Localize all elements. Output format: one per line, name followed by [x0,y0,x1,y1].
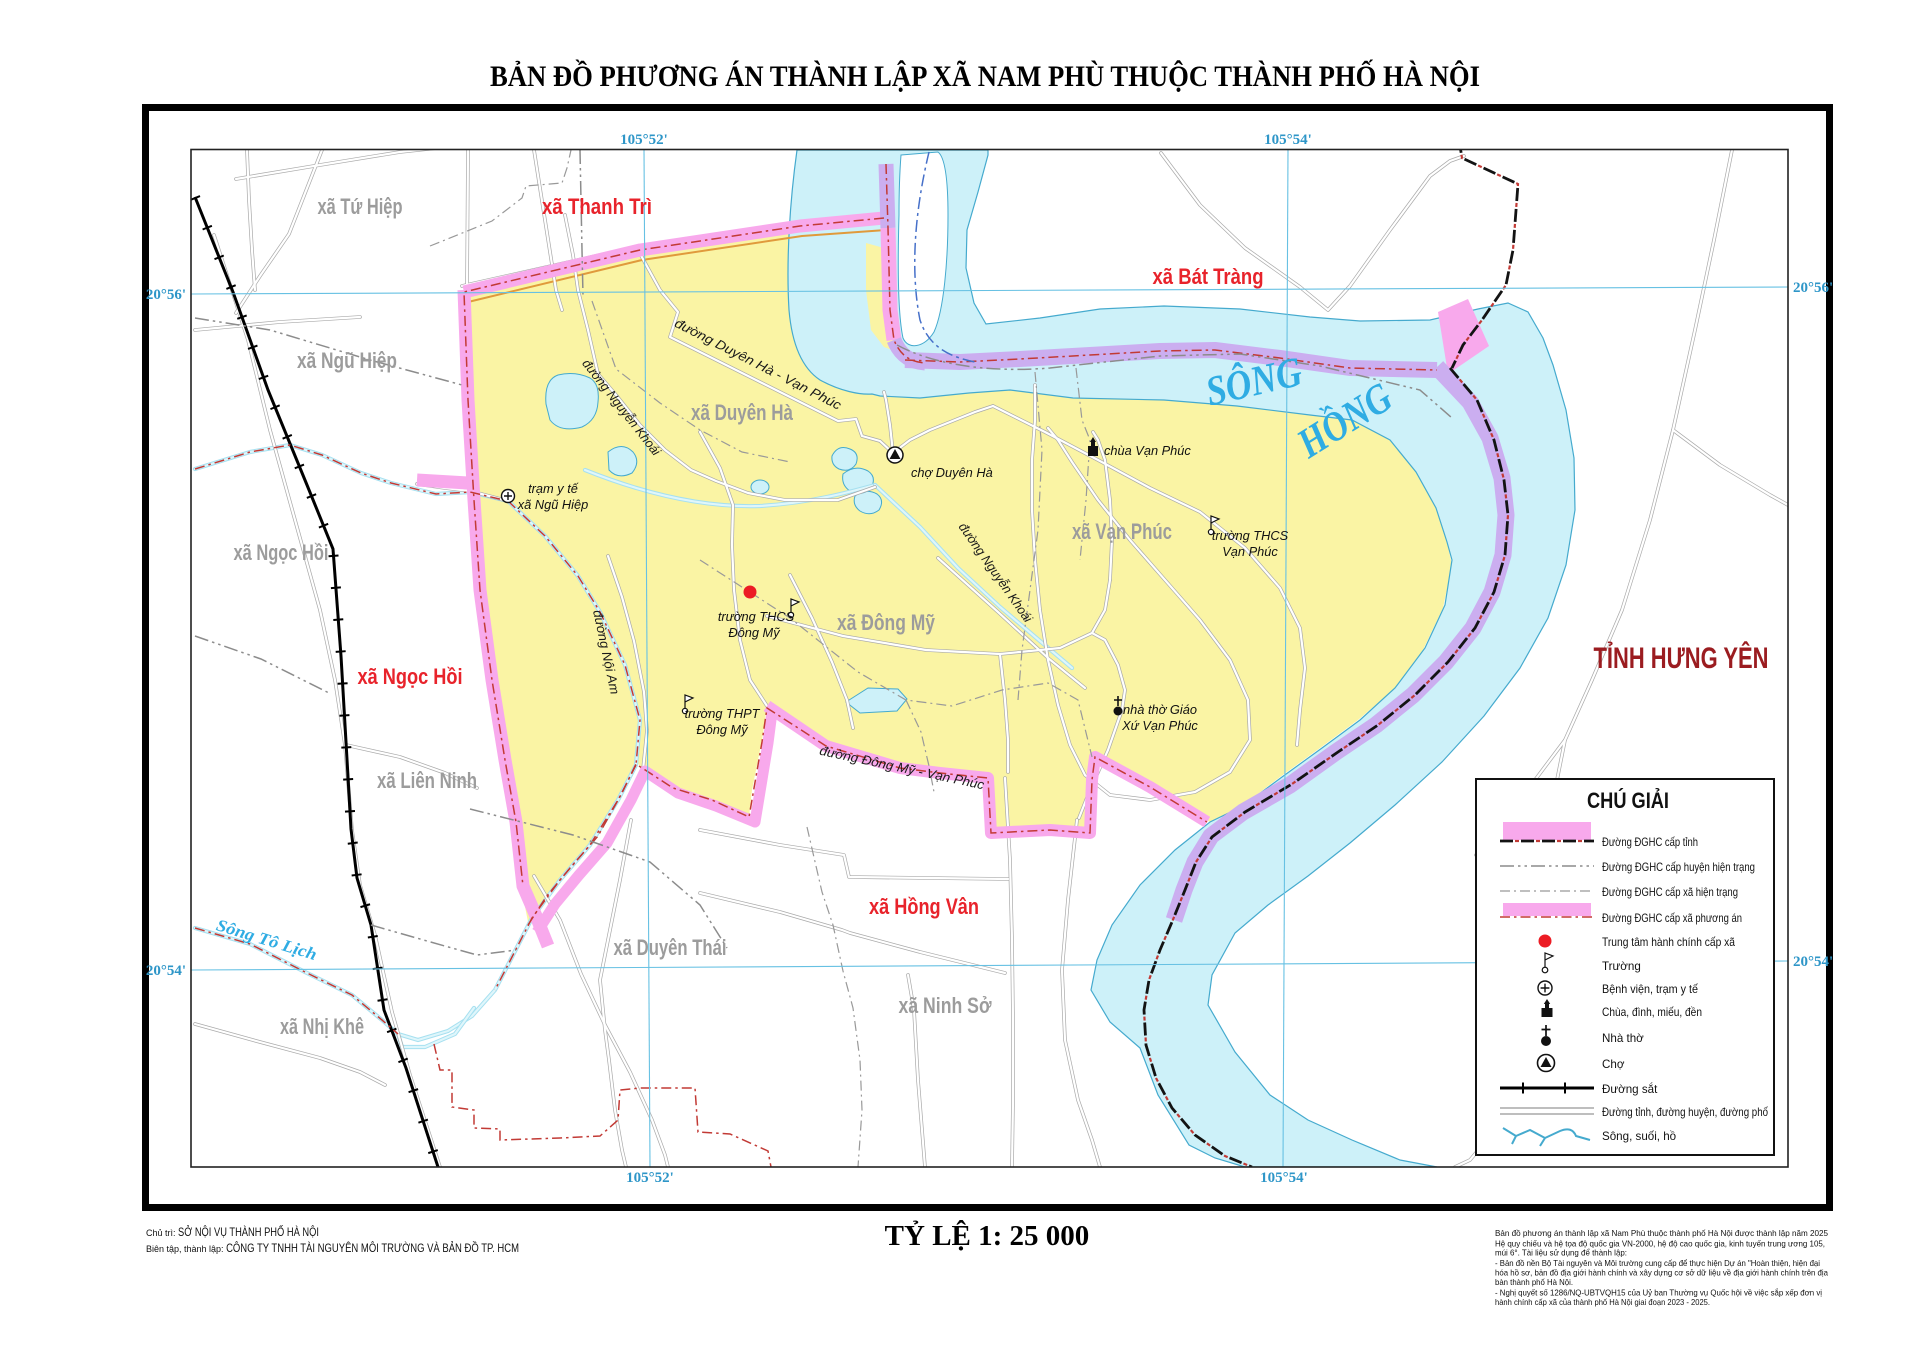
svg-text:xã Hồng Vân: xã Hồng Vân [869,894,979,919]
svg-text:xã Nhị Khê: xã Nhị Khê [280,1014,364,1039]
svg-text:Đường sắt: Đường sắt [1602,1083,1658,1096]
svg-text:Xứ Vạn Phúc: Xứ Vạn Phúc [1121,718,1198,733]
svg-text:hóa hồ sơ, bản đồ địa giới hàn: hóa hồ sơ, bản đồ địa giới hành chính và… [1495,1268,1828,1278]
svg-text:Vạn Phúc: Vạn Phúc [1222,544,1278,559]
svg-text:Sông, suối, hồ: Sông, suối, hồ [1602,1130,1676,1143]
svg-text:xã Duyên Hà: xã Duyên Hà [691,400,794,425]
svg-text:Nhà thờ: Nhà thờ [1602,1032,1644,1045]
svg-text:105°54': 105°54' [1264,132,1312,148]
svg-text:20°56': 20°56' [146,287,186,303]
svg-text:105°52': 105°52' [620,132,668,148]
svg-text:chợ Duyên Hà: chợ Duyên Hà [911,465,993,480]
svg-text:Chủ trì: SỞ NỘI VỤ THÀNH PHỐ H: Chủ trì: SỞ NỘI VỤ THÀNH PHỐ HÀ NỘI [146,1225,319,1239]
svg-text:Đường ĐGHC cấp xã hiện trạng: Đường ĐGHC cấp xã hiện trạng [1602,886,1738,899]
svg-text:xã Ngũ Hiệp: xã Ngũ Hiệp [297,348,397,373]
svg-text:xã Ngọc Hồi: xã Ngọc Hồi [358,664,463,689]
svg-text:105°54': 105°54' [1260,1170,1308,1186]
svg-text:- Bản đồ nền Bộ Tài nguyên và: - Bản đồ nền Bộ Tài nguyên và Môi trường… [1495,1258,1820,1268]
svg-text:xã Ninh Sở: xã Ninh Sở [899,993,992,1018]
svg-text:105°52': 105°52' [626,1170,674,1186]
svg-text:xã Ngọc Hồi: xã Ngọc Hồi [234,540,329,565]
svg-text:Đông Mỹ: Đông Mỹ [696,722,749,737]
svg-text:trạm y tế: trạm y tế [528,481,579,496]
svg-text:Chợ: Chợ [1602,1058,1625,1071]
svg-text:nhà thờ Giáo: nhà thờ Giáo [1123,702,1197,717]
svg-text:xã Ngũ Hiệp: xã Ngũ Hiệp [517,497,588,512]
svg-text:xã Duyên Thái: xã Duyên Thái [614,935,727,960]
svg-text:xã Liên Ninh: xã Liên Ninh [377,768,477,793]
svg-text:xã Tứ Hiệp: xã Tứ Hiệp [318,194,403,219]
svg-text:trường THPT: trường THPT [685,706,761,721]
svg-text:trường THCS: trường THCS [718,609,795,624]
svg-text:xã Đông Mỹ: xã Đông Mỹ [837,610,936,635]
svg-text:20°54': 20°54' [1793,954,1833,970]
svg-text:Đường ĐGHC cấp huyện hiện trạn: Đường ĐGHC cấp huyện hiện trạng [1602,861,1755,874]
svg-text:Đường ĐGHC cấp tỉnh: Đường ĐGHC cấp tỉnh [1602,836,1698,849]
svg-text:xã Vạn Phúc: xã Vạn Phúc [1072,519,1172,544]
svg-text:Biên tập, thành lập: CÔNG TY T: Biên tập, thành lập: CÔNG TY TNHH TÀI NG… [146,1242,519,1255]
svg-text:Đường ĐGHC cấp xã phương án: Đường ĐGHC cấp xã phương án [1602,912,1742,925]
svg-text:TỈNH HƯNG YÊN: TỈNH HƯNG YÊN [1594,641,1769,675]
svg-text:Chùa, đình, miếu, đền: Chùa, đình, miếu, đền [1602,1006,1702,1019]
svg-text:Đông Mỹ: Đông Mỹ [728,625,781,640]
svg-text:- Nghị quyết số 1286/NQ-UBTVQH: - Nghị quyết số 1286/NQ-UBTVQH15 của Uỷ … [1495,1288,1822,1298]
svg-text:Đường tỉnh, đường huyện, đường: Đường tỉnh, đường huyện, đường phố [1602,1106,1768,1119]
svg-text:Bản đồ phương án thành lập xã: Bản đồ phương án thành lập xã Nam Phù th… [1495,1228,1828,1238]
svg-text:CHÚ GIẢI: CHÚ GIẢI [1587,788,1669,813]
svg-text:Trung tâm hành chính cấp xã: Trung tâm hành chính cấp xã [1602,936,1735,949]
svg-text:Trường: Trường [1602,960,1641,973]
svg-text:xã Thanh Trì: xã Thanh Trì [542,194,652,219]
svg-text:20°54': 20°54' [146,963,186,979]
svg-text:BẢN ĐỒ PHƯƠNG ÁN THÀNH LẬP XÃ: BẢN ĐỒ PHƯƠNG ÁN THÀNH LẬP XÃ NAM PHÙ TH… [490,59,1480,93]
svg-text:hành chính cấp xã của thành ph: hành chính cấp xã của thành phố Hà Nội g… [1495,1297,1710,1307]
svg-text:bàn thành phố Hà Nội.: bàn thành phố Hà Nội. [1495,1277,1573,1287]
svg-text:chùa Vạn Phúc: chùa Vạn Phúc [1104,443,1191,458]
svg-text:xã Bát Tràng: xã Bát Tràng [1153,264,1264,289]
svg-text:Bệnh viện, trạm y tế: Bệnh viện, trạm y tế [1602,983,1699,996]
svg-text:trường THCS: trường THCS [1212,528,1289,543]
svg-text:TỶ LỆ 1: 25 000: TỶ LỆ 1: 25 000 [885,1219,1090,1252]
svg-text:múi 6°. Tài liệu sử dụng để th: múi 6°. Tài liệu sử dụng để thành lập: [1495,1248,1627,1258]
svg-text:20°56': 20°56' [1793,280,1833,296]
